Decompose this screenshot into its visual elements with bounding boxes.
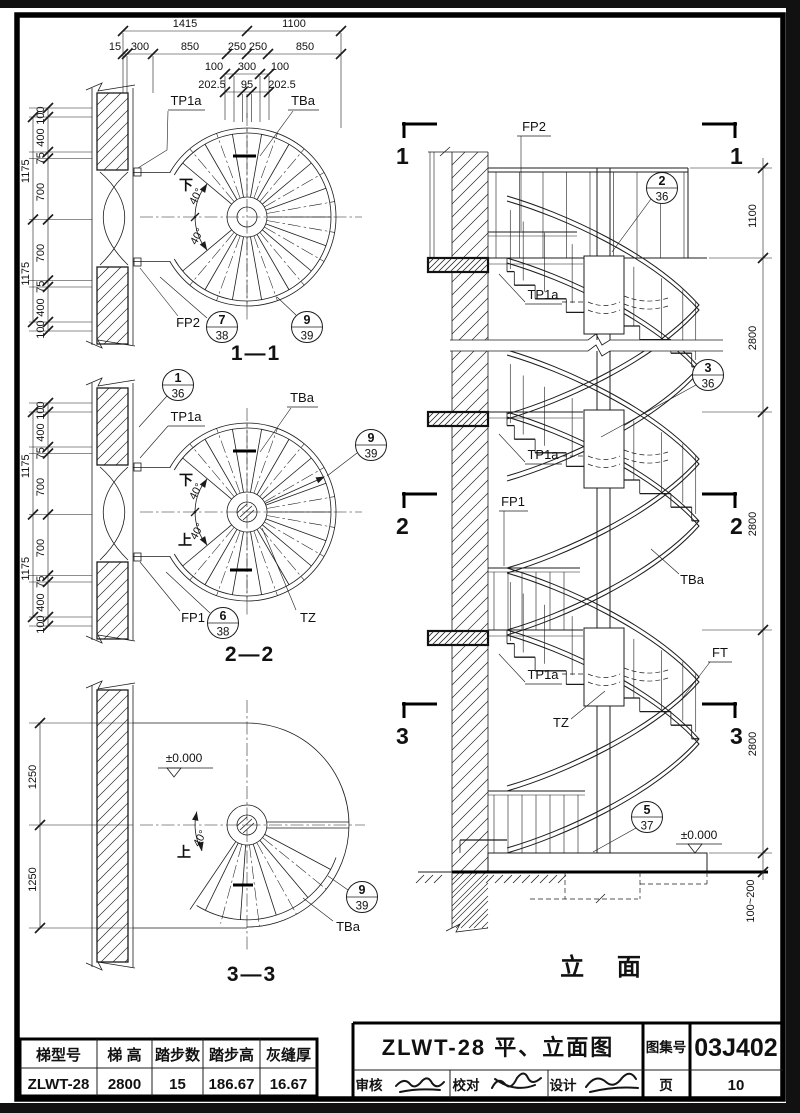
dim-label: 1100 (747, 204, 759, 228)
dim-label: 1175 (20, 454, 32, 478)
detail-bubble-top: 9 (359, 883, 366, 897)
table-value: 16.67 (270, 1076, 308, 1093)
dim-label: 400 (35, 298, 47, 316)
tp1a-label: TP1a (170, 93, 202, 108)
level-label: ±0.000 (681, 828, 718, 842)
section-mark: 3 (730, 723, 743, 749)
text-label: 850 (296, 41, 314, 53)
review-label: 审核 (356, 1077, 383, 1093)
dim-label: 1250 (27, 765, 39, 789)
detail-bubble-bottom: 39 (356, 901, 369, 913)
detail-bubble-bottom: 37 (641, 821, 654, 833)
dim-label: 1250 (27, 867, 39, 891)
dim-label: 400 (35, 593, 47, 611)
atlas-number: 03J402 (694, 1034, 777, 1062)
detail-bubble-top: 1 (175, 371, 182, 385)
tba-label: TBa (291, 93, 316, 108)
detail-bubble-top: 9 (304, 313, 311, 327)
dim-label: 2800 (747, 326, 759, 350)
dim-label: 1175 (20, 159, 32, 183)
section-mark: 2 (396, 513, 409, 539)
dim-label: 100 (35, 320, 47, 338)
atlas-label: 图集号 (646, 1039, 687, 1055)
design-label: 设计 (550, 1077, 578, 1093)
section-mark: 2 (730, 513, 743, 539)
page-label: 页 (659, 1078, 673, 1093)
detail-bubble-top: 2 (659, 174, 666, 188)
detail-bubble-bottom: 39 (301, 331, 314, 343)
table-header: 灰缝厚 (266, 1046, 311, 1064)
dim-label: 1175 (20, 557, 32, 581)
detail-bubble-top: 3 (705, 361, 712, 375)
text-label: 15 (109, 41, 121, 53)
dim-label: 2800 (747, 512, 759, 536)
table-value: ZLWT-28 (28, 1076, 90, 1093)
dim-label: 100 (35, 106, 47, 124)
tp1a-label: TP1a (527, 287, 559, 302)
level-label: ±0.000 (166, 751, 203, 765)
detail-bubble-bottom: 39 (365, 449, 378, 461)
text-label: 100 (205, 61, 223, 73)
dim-label: 700 (35, 478, 47, 496)
text-label: 250 (228, 41, 246, 53)
text-label: 1100 (282, 18, 306, 30)
dim-label: 100 (35, 401, 47, 419)
detail-bubble-bottom: 36 (656, 192, 669, 204)
dim-label: 2800 (747, 732, 759, 756)
plan3-title: 3—3 (227, 963, 277, 986)
detail-bubble-top: 9 (368, 431, 375, 445)
ft-label: FT (712, 645, 728, 660)
up-label: 上 (177, 844, 191, 860)
table-header: 踏步高 (209, 1046, 254, 1064)
detail-bubble-bottom: 38 (216, 331, 229, 343)
detail-bubble-top: 6 (220, 609, 227, 623)
text-label: 202.5 (198, 79, 226, 91)
fp1-label: FP1 (181, 610, 205, 625)
plan1-title: 1—1 (231, 342, 281, 365)
parameter-table: 梯型号梯 高踏步数踏步高灰缝厚ZLWT-28280015186.6716.67 (20, 1039, 317, 1096)
section-mark: 1 (396, 143, 409, 169)
text-label: 250 (249, 41, 267, 53)
table-value: 15 (169, 1076, 186, 1093)
detail-bubble-bottom: 36 (702, 379, 715, 391)
dim-label: 700 (35, 244, 47, 262)
detail-bubble-bottom: 36 (172, 389, 185, 401)
table-header: 踏步数 (155, 1046, 201, 1064)
tba-label: TBa (336, 919, 361, 934)
stair-drawing-svg: 1415110015300850250250850100300100202.59… (0, 0, 800, 1113)
table-header: 梯型号 (36, 1046, 81, 1064)
dim-label: 100~200 (745, 879, 757, 922)
detail-bubble-top: 5 (644, 803, 651, 817)
text-label: 100 (271, 61, 289, 73)
page-number: 10 (728, 1077, 745, 1094)
text-label: 300 (238, 61, 256, 73)
detail-bubble-top: 7 (219, 313, 226, 327)
fp2-label: FP2 (522, 119, 546, 134)
text-label: 850 (181, 41, 199, 53)
detail-bubble-bottom: 38 (217, 627, 230, 639)
table-value: 2800 (108, 1076, 141, 1093)
tp1a-label: TP1a (170, 409, 202, 424)
tz-label: TZ (300, 610, 316, 625)
section-mark: 1 (730, 143, 743, 169)
text-label: 1415 (173, 18, 197, 30)
dim-label: 400 (35, 423, 47, 441)
dim-label: 1175 (20, 262, 32, 286)
elevation-title: 立 面 (560, 953, 654, 981)
drawing-sheet: 1415110015300850250250850100300100202.59… (0, 0, 800, 1113)
dim-label: 400 (35, 128, 47, 146)
dim-label: 700 (35, 539, 47, 557)
proof-label: 校对 (453, 1077, 480, 1093)
text-label: 202.5 (268, 79, 296, 91)
down-label: 下 (179, 177, 193, 193)
dim-label: 100 (35, 615, 47, 633)
text-label: 300 (131, 41, 149, 53)
up-label: 上 (178, 532, 192, 548)
tba-label: TBa (680, 572, 705, 587)
table-header: 梯 高 (107, 1046, 141, 1064)
table-value: 186.67 (209, 1076, 255, 1093)
tba-label: TBa (290, 390, 315, 405)
tp1a-label: TP1a (527, 667, 559, 682)
tz-label: TZ (553, 715, 569, 730)
tp1a-label: TP1a (527, 447, 559, 462)
down-label: 下 (179, 472, 193, 488)
fp1-label: FP1 (501, 494, 525, 509)
sheet-title: ZLWT-28 平、立面图 (382, 1035, 615, 1060)
fp2-label: FP2 (176, 315, 200, 330)
section-mark: 3 (396, 723, 409, 749)
dim-label: 700 (35, 183, 47, 201)
plan2-title: 2—2 (225, 643, 275, 666)
text-label: 95 (241, 79, 253, 91)
